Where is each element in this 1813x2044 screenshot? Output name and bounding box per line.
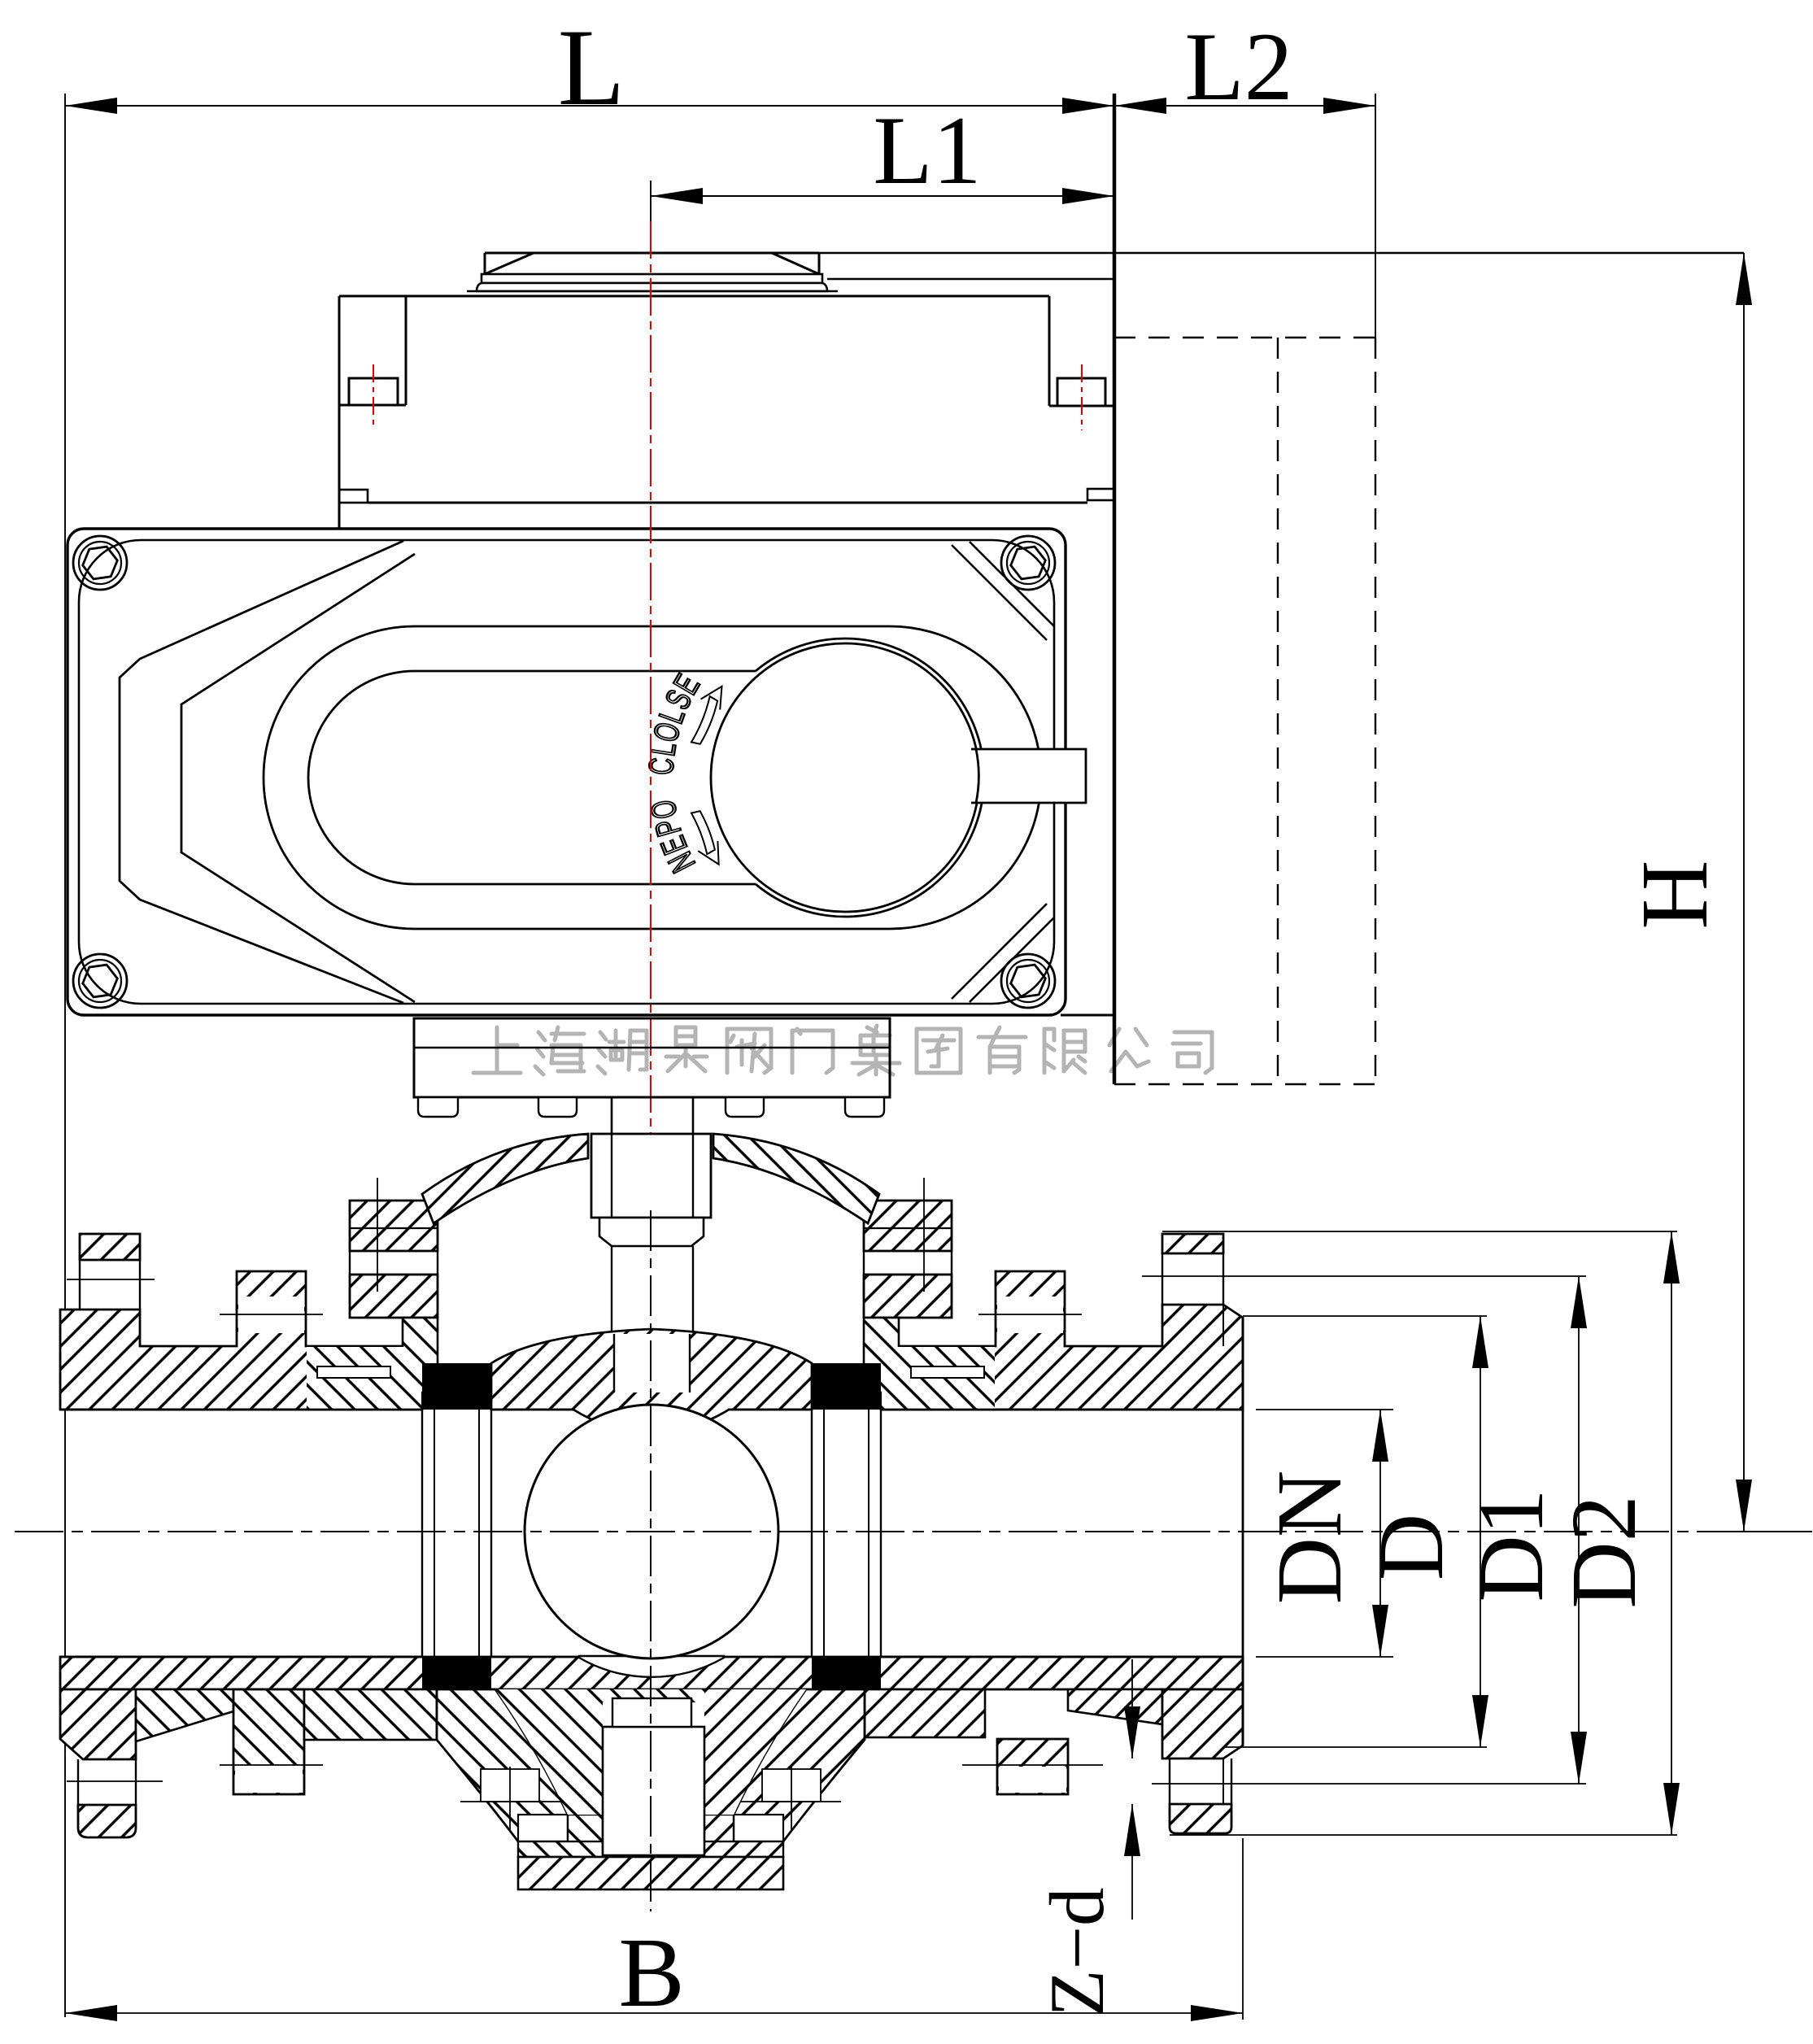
svg-text:L2: L2 bbox=[1184, 12, 1292, 120]
svg-text:C: C bbox=[641, 756, 681, 776]
svg-text:D: D bbox=[1359, 1514, 1462, 1580]
svg-text:B: B bbox=[618, 1918, 684, 2028]
svg-text:L1: L1 bbox=[873, 96, 981, 204]
svg-text:H: H bbox=[1621, 860, 1728, 929]
svg-text:D2: D2 bbox=[1552, 1495, 1655, 1608]
svg-text:D1: D1 bbox=[1459, 1488, 1562, 1602]
svg-text:L: L bbox=[558, 7, 625, 129]
svg-text:Z−d: Z−d bbox=[1034, 1887, 1120, 2016]
svg-text:DN: DN bbox=[1257, 1471, 1361, 1605]
